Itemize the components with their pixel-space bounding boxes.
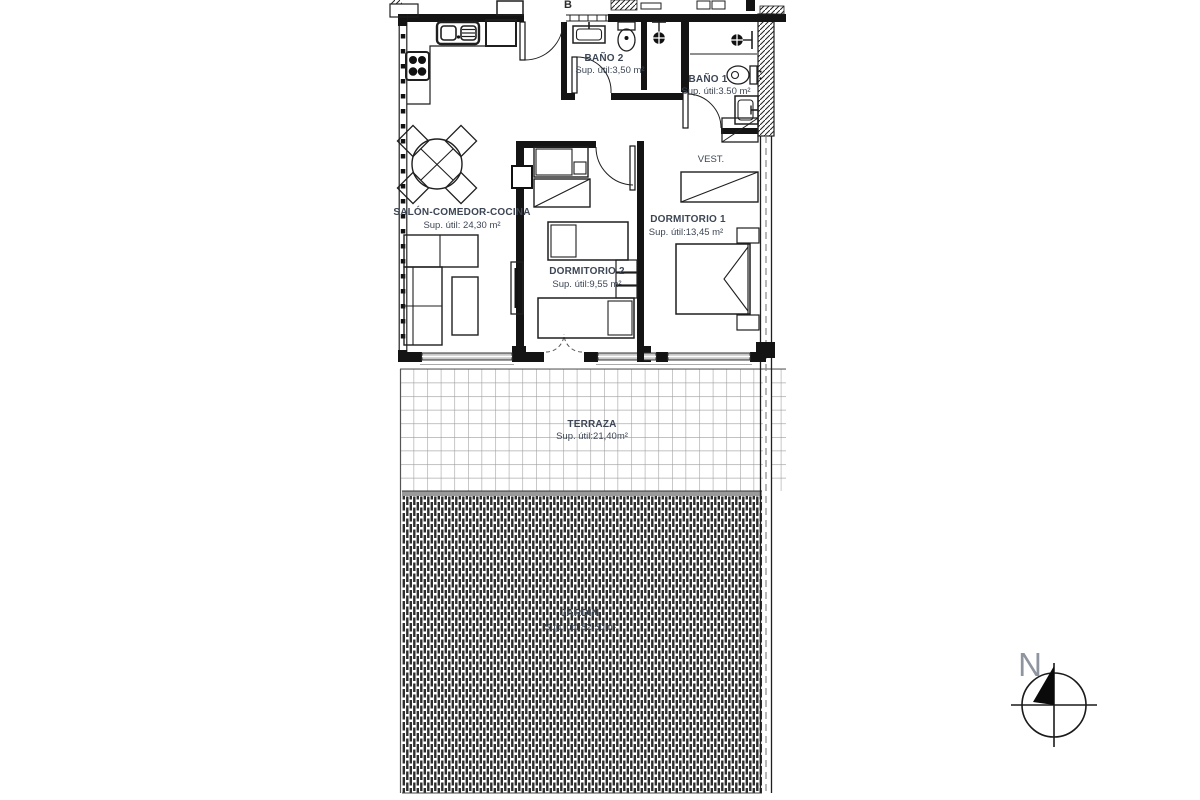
fridge-icon	[486, 20, 516, 46]
single-bed-icon	[548, 222, 628, 260]
single-bed-icon	[538, 298, 634, 338]
wardrobe-icon	[681, 172, 758, 202]
nightstand-icon	[737, 228, 759, 243]
section-marker-b: B	[564, 0, 572, 11]
counter-edge	[407, 46, 486, 104]
area-salon: Sup. útil: 24,30 m²	[423, 220, 500, 231]
garden-area	[402, 491, 762, 793]
toilet-icon	[618, 22, 635, 51]
kitchen-fixtures	[397, 1, 523, 204]
label-terraza: TERRAZA	[567, 419, 616, 430]
wall-column	[512, 166, 532, 188]
extractor-unit	[497, 1, 523, 15]
top-window	[566, 15, 608, 21]
area-dormitorio1: Sup. útil:13,45 m²	[649, 227, 723, 238]
area-bano1: Sup. útil:3.50 m²	[681, 86, 750, 97]
shower-icon	[731, 31, 753, 49]
bedroom2-door	[596, 146, 635, 190]
bathroom2-fixtures	[573, 22, 666, 51]
area-bano2: Sup. útil:3,50 m²	[575, 65, 644, 76]
label-dormitorio1: DORMITORIO 1	[650, 214, 726, 225]
bedroom2-furniture	[534, 147, 637, 338]
washbasin-icon	[573, 22, 605, 43]
north-label: N	[1018, 646, 1042, 683]
label-bano2: BAÑO 2	[585, 51, 624, 64]
bathroom1-door	[683, 92, 721, 128]
shower-icon	[652, 22, 666, 45]
label-salon: SALÓN-COMEDOR-COCINA	[393, 205, 530, 218]
stove-icon	[406, 52, 429, 80]
terrace-paving-neighbor	[772, 369, 786, 491]
north-compass: N	[1011, 646, 1097, 747]
area-jardin: Sup. útil:82,50m²	[544, 622, 616, 633]
garden-hatch	[402, 491, 762, 793]
dining-table-icon	[397, 125, 476, 203]
desk-unit-icon	[534, 147, 588, 177]
label-jardin: JARDIN	[561, 608, 599, 619]
double-bed-icon	[676, 228, 759, 330]
sofa-icon	[404, 235, 478, 345]
wardrobe-icon	[534, 179, 590, 207]
coffee-table-icon	[452, 277, 478, 335]
area-dormitorio2: Sup. útil:9,55 m²	[552, 279, 621, 290]
kitchen-sink-icon	[437, 22, 479, 44]
floor-plan-drawing: SALÓN-COMEDOR-COCINA Sup. útil: 24,30 m²…	[0, 0, 1200, 800]
toilet-icon	[727, 66, 762, 84]
terrace-door-swing	[546, 334, 582, 352]
entrance-door	[520, 22, 563, 60]
label-bano1: BAÑO 1	[689, 72, 728, 85]
living-room-furniture	[404, 235, 523, 345]
area-terraza: Sup. útil:21,40m²	[556, 431, 628, 442]
nightstand-icon	[737, 315, 759, 330]
label-vestidor: VEST.	[698, 154, 724, 165]
terrace-paving	[400, 369, 763, 491]
label-dormitorio2: DORMITORIO 2	[549, 266, 625, 277]
floor-plan-page: SALÓN-COMEDOR-COCINA Sup. útil: 24,30 m²…	[0, 0, 1200, 800]
